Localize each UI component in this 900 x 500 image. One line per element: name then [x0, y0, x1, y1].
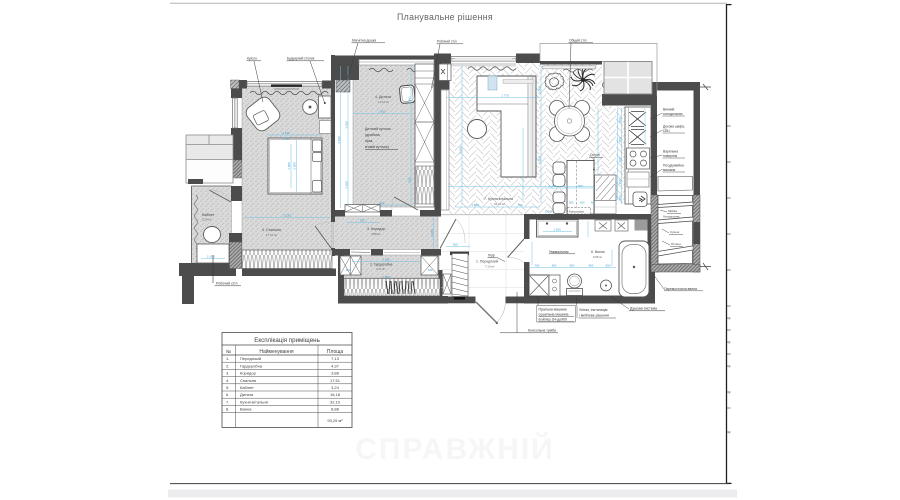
svg-text:1 811: 1 811	[378, 110, 386, 114]
svg-text:Коридор: Коридор	[240, 371, 257, 376]
svg-text:17,51: 17,51	[330, 378, 341, 383]
svg-text:1 800: 1 800	[471, 203, 479, 207]
svg-text:1 800: 1 800	[382, 275, 390, 279]
svg-text:Пуф: Пуф	[488, 254, 495, 258]
svg-text:Дитячий куточок: Дитячий куточок	[365, 127, 391, 131]
svg-text:Консольна: Консольна	[569, 210, 584, 214]
svg-text:3,24: 3,24	[331, 385, 340, 390]
svg-text:3,24 м²: 3,24 м²	[202, 218, 211, 222]
svg-text:4.: 4.	[226, 378, 229, 383]
svg-text:450: 450	[618, 137, 622, 142]
svg-text:м'який куточок): м'який куточок)	[365, 145, 389, 149]
svg-text:Полиці: Полиці	[671, 242, 681, 246]
svg-text:900: 900	[578, 184, 583, 188]
svg-text:3.: 3.	[226, 371, 229, 376]
svg-text:3. Коридор: 3. Коридор	[367, 227, 385, 231]
svg-text:Робочий стіл: Робочий стіл	[437, 40, 457, 44]
svg-text:500: 500	[606, 263, 611, 267]
svg-text:Общий стіл: Общий стіл	[569, 39, 587, 43]
svg-text:Сушок: Сушок	[670, 230, 680, 234]
svg-text:3 130: 3 130	[283, 214, 291, 218]
svg-text:гірка,: гірка,	[365, 139, 373, 143]
svg-text:8,88: 8,88	[331, 407, 340, 412]
svg-text:6.: 6.	[226, 392, 229, 397]
svg-text:17,51 м²: 17,51 м²	[266, 233, 277, 237]
svg-text:3,88 м²: 3,88 м²	[371, 232, 380, 236]
svg-text:2 060: 2 060	[344, 181, 348, 189]
svg-text:Дитяча: Дитяча	[240, 392, 254, 397]
svg-text:Будуарний столик: Будуарний столик	[287, 57, 315, 61]
svg-text:4. Спальня: 4. Спальня	[262, 228, 281, 232]
svg-text:2 000: 2 000	[293, 162, 297, 170]
svg-text:Окремостояча ванна: Окремостояча ванна	[664, 287, 697, 291]
svg-text:600: 600	[618, 195, 622, 200]
svg-text:700: 700	[359, 219, 364, 223]
svg-text:Ванна: Ванна	[240, 407, 252, 412]
svg-text:800: 800	[570, 263, 575, 267]
svg-text:Бойлер 2Н-до900: Бойлер 2Н-до900	[539, 318, 568, 322]
svg-text:Холодильник: Холодильник	[663, 215, 680, 219]
svg-text:Пральна машина: Пральна машина	[539, 308, 567, 312]
svg-text:1 900: 1 900	[287, 162, 291, 170]
svg-text:1. Передпокій: 1. Передпокій	[476, 260, 498, 264]
svg-text:600: 600	[428, 268, 433, 272]
svg-text:600: 600	[407, 177, 411, 182]
svg-text:7. Кухня-вітальня: 7. Кухня-вітальня	[484, 197, 513, 201]
svg-text:3,88: 3,88	[331, 371, 340, 376]
svg-text:машина: машина	[663, 168, 675, 172]
svg-text:4,37: 4,37	[331, 363, 340, 368]
svg-text:Мийка: Мийка	[668, 209, 677, 213]
svg-text:сушильна машина: сушильна машина	[539, 313, 569, 317]
svg-text:16,18: 16,18	[330, 392, 341, 397]
svg-text:Кабінет: Кабінет	[240, 385, 254, 390]
svg-text:1.: 1.	[226, 356, 229, 361]
svg-text:2 130: 2 130	[282, 131, 290, 135]
svg-text:Умивальник: Умивальник	[549, 250, 569, 254]
svg-text:(драбина,: (драбина,	[365, 133, 380, 137]
svg-text:93,29 м²: 93,29 м²	[327, 418, 343, 423]
svg-text:Спальня: Спальня	[240, 378, 256, 383]
svg-text:Унітаз, інсталяція: Унітаз, інсталяція	[579, 308, 607, 312]
svg-text:Консольна тумба: Консольна тумба	[528, 329, 556, 333]
svg-text:1 000: 1 000	[207, 255, 215, 259]
svg-text:4 930: 4 930	[337, 136, 341, 144]
svg-text:360: 360	[552, 263, 557, 267]
svg-text:4. Дитяча: 4. Дитяча	[375, 95, 391, 99]
svg-text:1 200: 1 200	[382, 258, 390, 262]
svg-text:600: 600	[618, 117, 622, 122]
svg-text:№: №	[226, 349, 231, 354]
svg-text:Душова система: Душова система	[630, 307, 657, 311]
svg-text:600: 600	[346, 268, 351, 272]
svg-text:Робочий стіл: Робочий стіл	[216, 282, 237, 286]
svg-text:1 930: 1 930	[344, 121, 348, 129]
svg-text:5.: 5.	[226, 385, 229, 390]
svg-text:5 035: 5 035	[458, 146, 462, 154]
svg-text:2 060: 2 060	[430, 229, 434, 237]
svg-text:і меблеве рішення: і меблеве рішення	[579, 314, 609, 318]
svg-text:Магнітна дошка: Магнітна дошка	[352, 39, 376, 43]
svg-text:14,16 м²: 14,16 м²	[378, 100, 389, 104]
svg-text:2.: 2.	[226, 363, 229, 368]
svg-text:700: 700	[517, 203, 522, 207]
svg-text:8,88 м²: 8,88 м²	[593, 255, 602, 259]
svg-text:7,13 м²: 7,13 м²	[485, 264, 494, 268]
svg-text:4,37 м²: 4,37 м²	[376, 267, 385, 271]
svg-text:Кухня-вітальня: Кухня-вітальня	[240, 399, 268, 404]
svg-text:1 770: 1 770	[501, 93, 509, 97]
svg-text:Планувальне рішення: Планувальне рішення	[397, 12, 493, 22]
svg-text:1 500: 1 500	[537, 156, 541, 164]
svg-text:СВЧ: СВЧ	[663, 129, 670, 133]
svg-text:450: 450	[618, 179, 622, 184]
svg-text:Площа: Площа	[327, 349, 343, 355]
svg-text:600: 600	[569, 201, 574, 205]
svg-text:Кабінет: Кабінет	[202, 213, 215, 217]
svg-text:1 990: 1 990	[282, 137, 290, 141]
svg-text:Крісло: Крісло	[247, 57, 257, 61]
svg-text:600: 600	[618, 157, 622, 162]
svg-text:1 100: 1 100	[549, 184, 557, 188]
svg-text:800: 800	[589, 263, 594, 267]
svg-text:600: 600	[580, 201, 585, 205]
svg-text:2. Гардеробна: 2. Гардеробна	[370, 263, 393, 267]
svg-text:1 200: 1 200	[553, 228, 561, 232]
svg-text:700: 700	[535, 263, 540, 267]
svg-text:Експлікація приміщень: Експлікація приміщень	[254, 337, 320, 344]
svg-text:32,10: 32,10	[330, 399, 341, 404]
svg-text:8. Ванна: 8. Ванна	[591, 250, 605, 254]
svg-text:2 000: 2 000	[537, 86, 541, 94]
svg-text:Острів: Острів	[590, 153, 600, 157]
svg-text:Найменування: Найменування	[259, 348, 294, 355]
svg-text:2 045: 2 045	[545, 210, 553, 214]
svg-text:Передпокій: Передпокій	[240, 356, 261, 361]
svg-text:8.: 8.	[226, 407, 229, 412]
svg-text:Гардеробна: Гардеробна	[240, 363, 263, 368]
svg-text:СПРАВЖНІЙ: СПРАВЖНІЙ	[355, 432, 554, 466]
svg-text:поверхня: поверхня	[663, 154, 677, 158]
svg-text:600: 600	[453, 242, 458, 246]
svg-text:7,13: 7,13	[331, 356, 340, 361]
svg-text:32,10 м²: 32,10 м²	[494, 202, 505, 206]
svg-text:1 491: 1 491	[407, 96, 411, 104]
svg-text:холодильник: холодильник	[663, 112, 683, 116]
svg-text:7.: 7.	[226, 399, 229, 404]
